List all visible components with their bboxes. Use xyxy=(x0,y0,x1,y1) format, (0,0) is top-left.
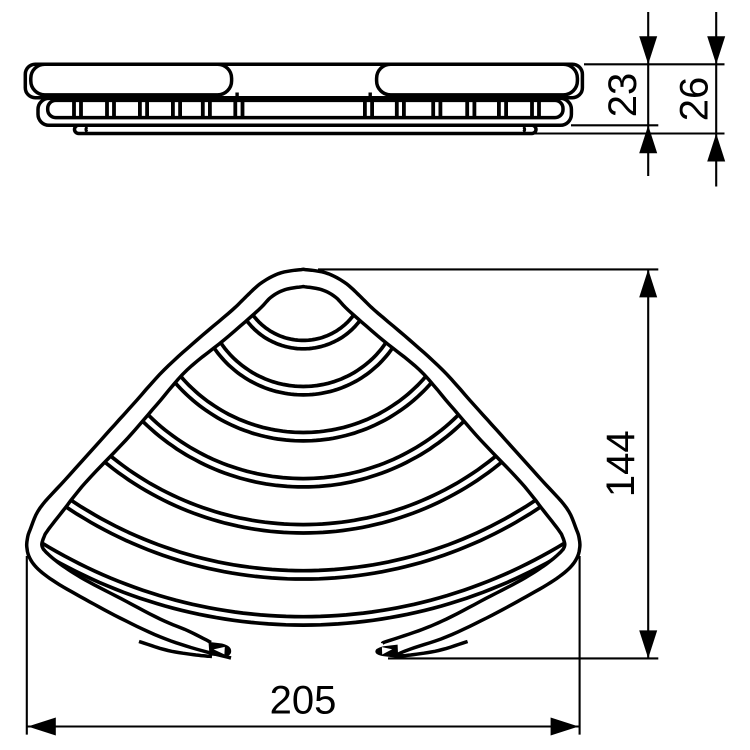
svg-text:26: 26 xyxy=(673,77,717,122)
svg-text:23: 23 xyxy=(601,73,645,118)
svg-text:205: 205 xyxy=(270,679,337,723)
svg-text:144: 144 xyxy=(599,430,643,497)
